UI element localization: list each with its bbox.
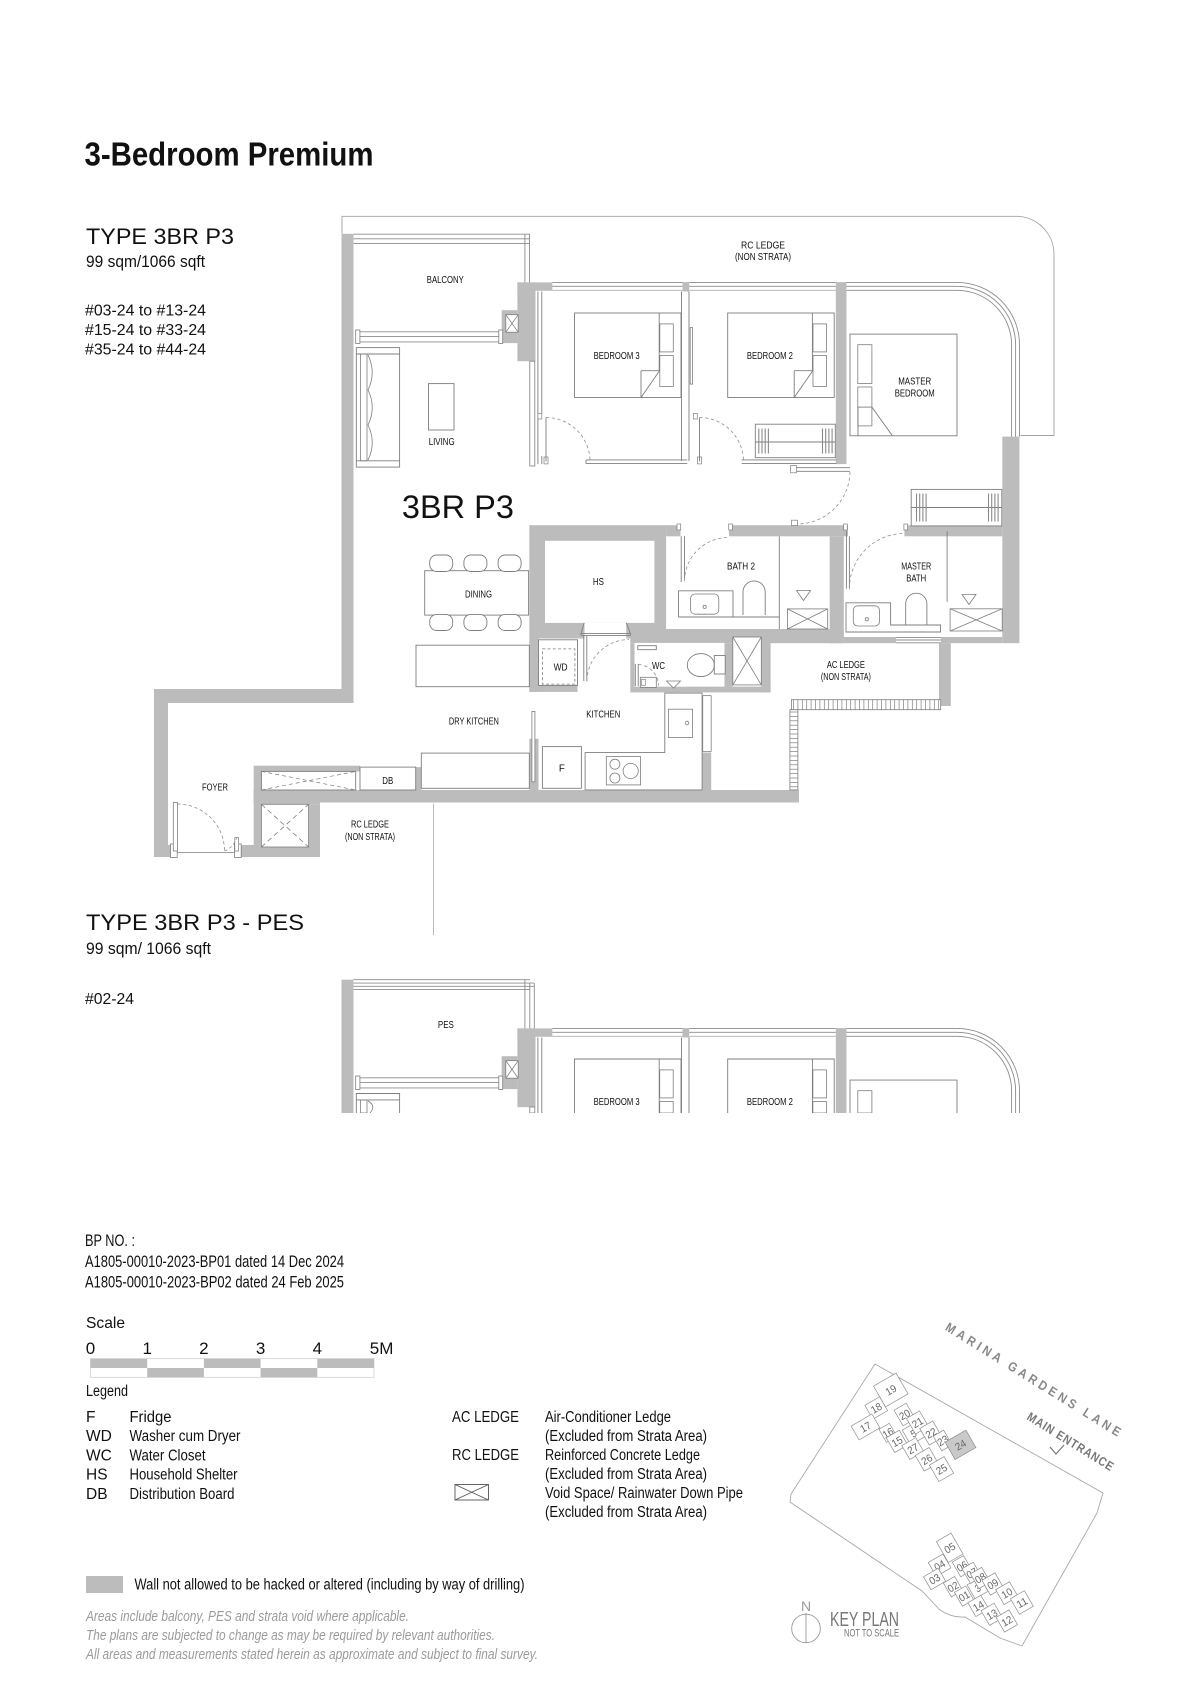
svg-text:3-Bedroom Premium: 3-Bedroom Premium — [85, 137, 374, 174]
svg-text:A1805-00010-2023-BP01 dated 14: A1805-00010-2023-BP01 dated 14 Dec 2024 — [85, 1253, 344, 1271]
svg-text:(Excluded from Strata Area): (Excluded from Strata Area) — [545, 1504, 707, 1521]
svg-text:DB: DB — [382, 776, 393, 787]
svg-text:TYPE 3BR P3 - PES: TYPE 3BR P3 - PES — [86, 910, 304, 935]
svg-text:Fridge: Fridge — [130, 1409, 172, 1426]
svg-text:AC LEDGE: AC LEDGE — [452, 1409, 519, 1426]
svg-text:BP NO. :: BP NO. : — [85, 1232, 135, 1250]
svg-text:WD: WD — [86, 1428, 112, 1445]
svg-text:5M: 5M — [370, 1339, 394, 1358]
svg-text:BATH: BATH — [906, 574, 926, 585]
svg-text:HS: HS — [86, 1467, 108, 1484]
svg-text:(NON STRATA): (NON STRATA) — [821, 672, 871, 683]
svg-text:FOYER: FOYER — [202, 783, 228, 794]
svg-text:Areas include balcony, PES and: Areas include balcony, PES and strata vo… — [85, 1609, 409, 1625]
svg-text:4: 4 — [313, 1339, 322, 1358]
svg-text:BEDROOM: BEDROOM — [895, 389, 935, 400]
svg-text:The plans are subjected to cha: The plans are subjected to change as may… — [86, 1628, 495, 1644]
svg-text:RC LEDGE: RC LEDGE — [741, 241, 785, 252]
svg-text:BEDROOM 2: BEDROOM 2 — [747, 351, 793, 362]
svg-text:F: F — [559, 764, 565, 775]
svg-text:RC LEDGE: RC LEDGE — [452, 1447, 519, 1464]
svg-text:Legend: Legend — [86, 1383, 128, 1400]
svg-text:A1805-00010-2023-BP02 dated 24: A1805-00010-2023-BP02 dated 24 Feb 2025 — [85, 1274, 344, 1292]
svg-text:Reinforced Concrete Ledge: Reinforced Concrete Ledge — [545, 1447, 700, 1464]
svg-text:(NON STRATA): (NON STRATA) — [345, 832, 395, 843]
svg-text:PES: PES — [438, 1020, 454, 1031]
svg-text:LIVING: LIVING — [429, 437, 455, 448]
svg-text:Void Space/ Rainwater Down Pip: Void Space/ Rainwater Down Pipe — [545, 1485, 743, 1502]
svg-text:Scale: Scale — [86, 1315, 125, 1332]
svg-text:N: N — [801, 1598, 811, 1614]
svg-text:3: 3 — [256, 1339, 265, 1358]
svg-text:#15-24 to #33-24: #15-24 to #33-24 — [85, 322, 206, 339]
svg-text:BEDROOM 2: BEDROOM 2 — [747, 1097, 793, 1108]
svg-text:AC LEDGE: AC LEDGE — [827, 660, 865, 671]
svg-text:MASTER: MASTER — [901, 562, 931, 573]
svg-text:99 sqm/ 1066 sqft: 99 sqm/ 1066 sqft — [86, 940, 211, 958]
svg-text:WC: WC — [86, 1447, 112, 1464]
svg-text:WC: WC — [652, 661, 665, 672]
svg-text:Wall not allowed to be hacked: Wall not allowed to be hacked or altered… — [135, 1577, 525, 1594]
svg-text:(Excluded from Strata Area): (Excluded from Strata Area) — [545, 1466, 707, 1483]
svg-text:BALCONY: BALCONY — [427, 275, 464, 286]
svg-text:Washer cum Dryer: Washer cum Dryer — [130, 1428, 241, 1445]
svg-text:BATH 2: BATH 2 — [727, 562, 755, 573]
svg-text:MASTER: MASTER — [898, 377, 931, 388]
svg-text:DINING: DINING — [465, 589, 492, 600]
svg-text:DRY KITCHEN: DRY KITCHEN — [449, 717, 499, 728]
svg-text:Air-Conditioner Ledge: Air-Conditioner Ledge — [545, 1409, 671, 1426]
svg-text:Distribution Board: Distribution Board — [130, 1486, 235, 1503]
svg-text:#35-24 to #44-24: #35-24 to #44-24 — [85, 341, 206, 358]
svg-text:99 sqm/1066 sqft: 99 sqm/1066 sqft — [86, 253, 205, 271]
svg-text:TYPE 3BR P3: TYPE 3BR P3 — [86, 224, 234, 249]
svg-text:Household Shelter: Household Shelter — [130, 1467, 238, 1484]
svg-text:KITCHEN: KITCHEN — [586, 710, 620, 721]
svg-text:HS: HS — [593, 577, 604, 588]
svg-text:NOT TO SCALE: NOT TO SCALE — [844, 1628, 899, 1640]
svg-text:BEDROOM 3: BEDROOM 3 — [594, 1097, 640, 1108]
svg-text:1: 1 — [142, 1339, 151, 1358]
svg-text:WD: WD — [554, 663, 568, 674]
svg-text:F: F — [86, 1409, 95, 1426]
svg-text:(Excluded from Strata Area): (Excluded from Strata Area) — [545, 1428, 707, 1445]
svg-text:All areas and measurements sta: All areas and measurements stated herein… — [85, 1647, 538, 1663]
svg-text:3BR P3: 3BR P3 — [402, 489, 514, 525]
svg-text:#03-24 to #13-24: #03-24 to #13-24 — [85, 303, 206, 320]
svg-text:0: 0 — [86, 1339, 95, 1358]
svg-text:#02-24: #02-24 — [85, 991, 134, 1008]
svg-text:(NON STRATA): (NON STRATA) — [735, 252, 791, 263]
svg-text:Water Closet: Water Closet — [130, 1447, 207, 1464]
svg-text:2: 2 — [199, 1339, 208, 1358]
svg-text:RC LEDGE: RC LEDGE — [351, 820, 389, 831]
svg-text:BEDROOM 3: BEDROOM 3 — [594, 351, 640, 362]
svg-text:DB: DB — [86, 1486, 108, 1503]
